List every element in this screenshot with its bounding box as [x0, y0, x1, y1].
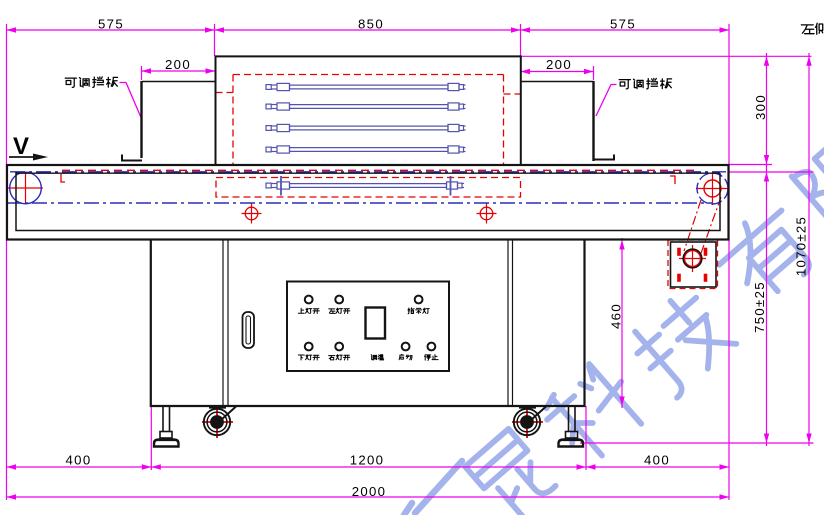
- svg-text:1200: 1200: [350, 453, 385, 468]
- svg-text:400: 400: [66, 453, 92, 468]
- svg-text:300: 300: [753, 94, 768, 120]
- svg-text:460: 460: [609, 303, 624, 329]
- svg-text:1070±25: 1070±25: [794, 216, 809, 276]
- svg-text:200: 200: [546, 57, 572, 72]
- svg-text:200: 200: [165, 57, 191, 72]
- svg-text:750±25: 750±25: [752, 281, 767, 333]
- svg-text:2000: 2000: [352, 484, 387, 499]
- svg-text:850: 850: [358, 17, 384, 32]
- svg-text:V: V: [13, 133, 29, 160]
- svg-text:400: 400: [644, 453, 670, 468]
- svg-text:575: 575: [98, 17, 124, 32]
- svg-text:575: 575: [610, 17, 636, 32]
